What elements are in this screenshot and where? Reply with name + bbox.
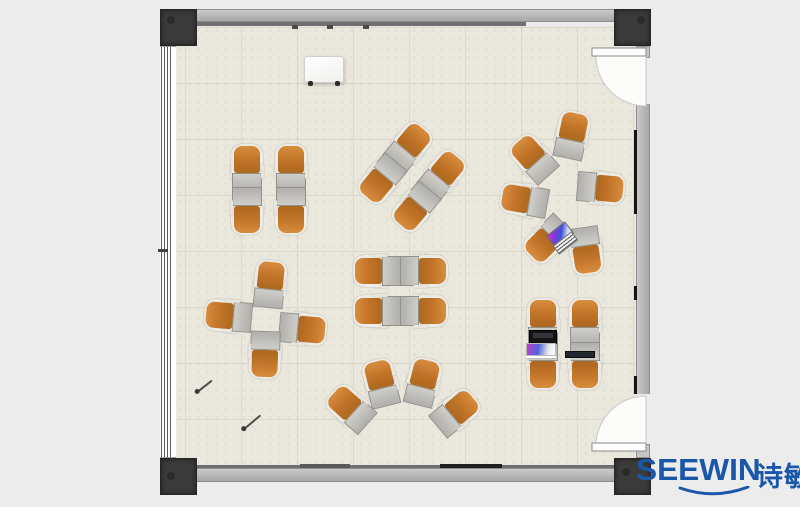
desk-top	[382, 296, 401, 326]
chair-seat	[593, 171, 627, 206]
chair-seat	[275, 144, 307, 175]
desk-chair-unit	[568, 298, 602, 346]
desk-chair-unit	[274, 187, 308, 235]
desk-top	[382, 256, 401, 286]
door-swing-top-icon	[588, 46, 650, 108]
floor-plan: SEEWIN 诗敏	[0, 0, 800, 507]
desk-chair-unit	[568, 342, 602, 390]
laptop-closed	[529, 330, 557, 344]
chair-seat	[417, 295, 448, 327]
corner-post	[160, 458, 197, 495]
corner-post	[614, 9, 651, 46]
desk-chair-unit	[247, 330, 283, 379]
desk-top	[276, 187, 306, 206]
chair-seat	[569, 359, 601, 390]
chair-seat	[231, 144, 263, 175]
chair-seat	[569, 298, 601, 329]
desk-top	[250, 330, 281, 350]
left-window-wall	[160, 46, 176, 458]
paper-stack	[526, 343, 556, 356]
desk-chair-unit	[230, 187, 264, 235]
chair-seat	[295, 312, 329, 347]
top-wall	[196, 9, 615, 22]
desk-top	[576, 171, 598, 203]
whiteboard-foot	[335, 81, 340, 86]
whiteboard	[304, 56, 344, 83]
desk-chair-unit	[274, 144, 308, 192]
post-dot	[167, 16, 175, 24]
desk-chair-unit	[278, 310, 329, 348]
bottom-wall-segment	[440, 464, 502, 468]
brand-logo: SEEWIN 诗敏	[630, 450, 798, 500]
top-wall-tick	[327, 25, 333, 29]
post-dot	[622, 468, 630, 476]
tablet	[565, 351, 595, 358]
desk-chair-unit	[576, 169, 627, 207]
bottom-wall-segment	[300, 464, 350, 468]
desk-top	[400, 256, 419, 286]
top-wall-dark-line	[196, 22, 526, 26]
bottom-wall	[196, 468, 615, 482]
post-dot	[637, 16, 645, 24]
left-window-tick	[158, 249, 168, 252]
desk-chair-unit	[203, 297, 254, 335]
desk-chair-unit	[400, 294, 448, 328]
chair-seat	[353, 295, 384, 327]
chair-seat	[527, 298, 559, 329]
right-wall	[636, 104, 650, 394]
whiteboard-foot	[308, 81, 313, 86]
right-wall-segment	[634, 286, 637, 300]
chair-seat	[417, 255, 448, 287]
desk-chair-unit	[353, 294, 401, 328]
chair-seat	[353, 255, 384, 287]
top-wall-tick	[363, 25, 369, 29]
desk-chair-unit	[400, 254, 448, 288]
desk-top	[253, 287, 285, 309]
brand-wordmark: SEEWIN	[636, 452, 761, 488]
chair-seat	[248, 347, 281, 379]
top-wall-tick	[292, 25, 298, 29]
desk-top	[232, 301, 254, 333]
door-swing-bottom-icon	[588, 392, 650, 454]
desk-chair-unit	[353, 254, 401, 288]
chair-seat	[527, 359, 559, 390]
desk-chair-unit	[230, 144, 264, 192]
post-dot	[167, 472, 175, 480]
chair-seat	[275, 204, 307, 235]
desk-chair-unit	[251, 258, 290, 309]
desk-top	[400, 296, 419, 326]
brand-swoosh-icon	[678, 486, 750, 498]
chair-seat	[231, 204, 263, 235]
corner-post	[160, 9, 197, 46]
right-wall-segment	[634, 130, 637, 214]
desk-top	[232, 187, 262, 206]
brand-chinese-name: 诗敏	[756, 455, 800, 494]
